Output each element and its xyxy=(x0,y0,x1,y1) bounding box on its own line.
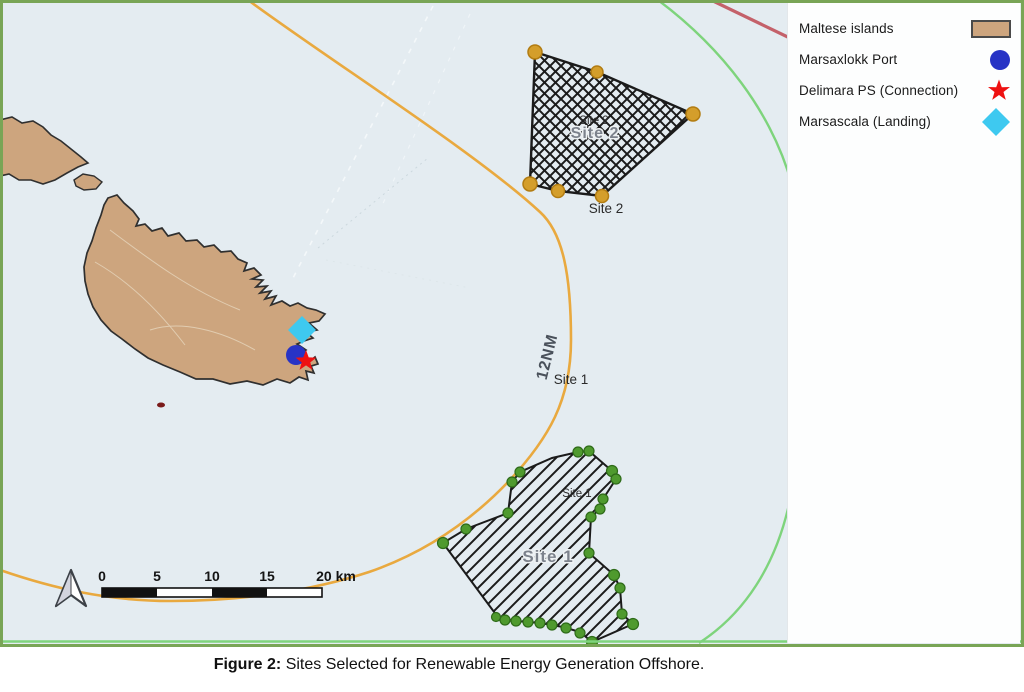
label-site1-point: Site 1 xyxy=(554,372,589,387)
legend-item-marsascala: Marsascala (Landing) xyxy=(799,106,1012,137)
legend-label-delimara-ps: Delimara PS (Connection) xyxy=(799,83,958,98)
landing-diamond-icon xyxy=(980,106,1012,138)
land-swatch-icon xyxy=(970,19,1012,39)
legend-label-marsaxlokk-port: Marsaxlokk Port xyxy=(799,52,897,67)
caption-prefix: Figure 2: xyxy=(214,656,282,673)
legend-item-delimara-ps: Delimara PS (Connection) xyxy=(799,75,1012,106)
caption-body: Sites Selected for Renewable Energy Gene… xyxy=(281,656,704,673)
scale-tick-15: 15 xyxy=(259,568,275,584)
label-site2-point: Site 2 xyxy=(589,201,624,216)
label-site2-large: Site 2 xyxy=(571,125,620,142)
figure-page: 12NM Site 1 Site 1 Site 1 Site 2 Site 2 … xyxy=(0,0,1024,692)
map-legend: Maltese islands Marsaxlokk Port Delimara… xyxy=(787,3,1020,643)
scale-tick-0: 0 xyxy=(98,568,106,584)
port-circle-icon xyxy=(988,48,1012,72)
scale-tick-20km: 20 km xyxy=(316,568,356,584)
filfla-islet xyxy=(157,403,165,408)
scale-tick-5: 5 xyxy=(153,568,161,584)
label-site1-large: Site 1 xyxy=(522,547,573,566)
scale-tick-10: 10 xyxy=(204,568,220,584)
figure-caption: Figure 2: Sites Selected for Renewable E… xyxy=(0,656,1024,674)
label-site1-small: Site 1 xyxy=(562,488,591,500)
legend-item-maltese-islands: Maltese islands xyxy=(799,13,1012,44)
legend-label-marsascala: Marsascala (Landing) xyxy=(799,114,931,129)
legend-item-marsaxlokk-port: Marsaxlokk Port xyxy=(799,44,1012,75)
legend-label-maltese-islands: Maltese islands xyxy=(799,21,894,36)
connection-star-icon xyxy=(986,78,1012,104)
